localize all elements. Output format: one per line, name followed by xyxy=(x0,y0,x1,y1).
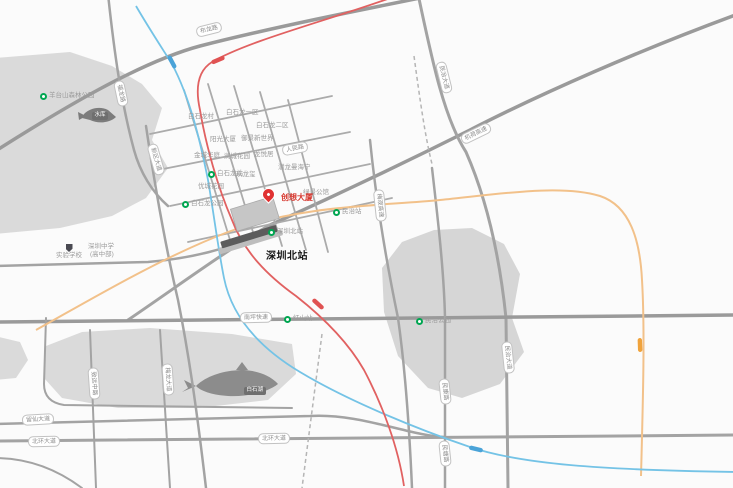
metro-station-poi[interactable]: 深圳北站 xyxy=(268,229,303,236)
metro-station-poi[interactable]: 红山站 xyxy=(284,316,313,323)
poi-text: 民治公园 xyxy=(425,318,451,325)
pin-label[interactable]: 创想大厦 xyxy=(281,192,313,203)
poi-label: 阳光大厦 xyxy=(210,137,236,144)
poi-text: 白石龙二区 xyxy=(256,123,289,130)
poi-label: 深圳中学 xyxy=(88,244,114,251)
poi-label: 白石龙一区 xyxy=(226,110,259,117)
poi-text: 润城花园 xyxy=(224,154,250,161)
poi-text: 红山站 xyxy=(293,316,313,323)
park-icon xyxy=(182,201,189,208)
poi-text: 民治站 xyxy=(342,209,362,216)
poi-label: 潜龙曼海宁 xyxy=(278,165,311,172)
poi-text: 深圳中学 xyxy=(88,244,114,251)
park-poi[interactable]: 羊台山森林公园 xyxy=(40,93,95,100)
poi-text: 白石龙公园 xyxy=(191,201,224,208)
park-icon xyxy=(416,318,423,325)
pin-icon xyxy=(261,187,277,203)
poi-text: 白石龙一区 xyxy=(226,110,259,117)
road-label: 北环大道 xyxy=(28,436,60,448)
poi-label: (高中部) xyxy=(90,252,114,259)
map-canvas[interactable]: 布龙路 福龙路 新区大道 人民路 民治大道 机荷高速 梅观高速 南坪快速 留仙大… xyxy=(0,0,733,488)
road-label: 北环大道 xyxy=(258,433,290,445)
park-icon xyxy=(40,93,47,100)
station-name-label: 深圳北站 xyxy=(266,247,308,262)
metro-station-poi[interactable]: 民治站 xyxy=(333,209,362,216)
road-label: 致远中路 xyxy=(87,367,100,400)
poi-text: 潜龙曼海宁 xyxy=(278,165,311,172)
park-poi[interactable]: 白石龙公园 xyxy=(182,201,224,208)
poi-text: 御景新世界 xyxy=(241,136,274,143)
road-label: 梅龙大道 xyxy=(161,363,174,396)
poi-label: 白石龙村 xyxy=(188,114,214,121)
metro-icon xyxy=(208,171,215,178)
poi-label: 龙悦居 xyxy=(254,152,274,159)
park-poi[interactable]: 民治公园 xyxy=(416,318,451,325)
poi-text: 优城花园 xyxy=(198,184,224,191)
poi-label: 白石龙二区 xyxy=(256,123,289,130)
poi-label: 润城花园 xyxy=(224,154,250,161)
school-poi: 实验学校 xyxy=(56,244,82,260)
poi-label: 优城花园 xyxy=(198,184,224,191)
poi-label: 御景新世界 xyxy=(241,136,274,143)
metro-icon xyxy=(284,316,291,323)
metro-icon xyxy=(333,209,340,216)
water-badge: 白石湖 xyxy=(244,387,266,395)
location-pin[interactable] xyxy=(263,189,275,205)
poi-label: 金城华庭 xyxy=(194,153,220,160)
poi-text: 实验学校 xyxy=(56,253,82,260)
poi-text: 龙悦居 xyxy=(254,152,274,159)
poi-text: 金城华庭 xyxy=(194,153,220,160)
water-badge: 水库 xyxy=(92,112,108,120)
school-shield-icon xyxy=(66,244,73,252)
poi-text: (高中部) xyxy=(90,252,114,259)
road-label: 留仙大道 xyxy=(22,413,55,426)
poi-text: 阳光大厦 xyxy=(210,137,236,144)
poi-text: 羊台山森林公园 xyxy=(49,93,95,100)
road-label: 南坪快速 xyxy=(240,312,272,324)
metro-icon xyxy=(268,229,275,236)
poi-text: 深圳北站 xyxy=(277,229,303,236)
metro-station-poi[interactable]: 白石龙站 xyxy=(208,171,243,178)
poi-text: 白石龙村 xyxy=(188,114,214,121)
poi-text: 白石龙站 xyxy=(217,171,243,178)
